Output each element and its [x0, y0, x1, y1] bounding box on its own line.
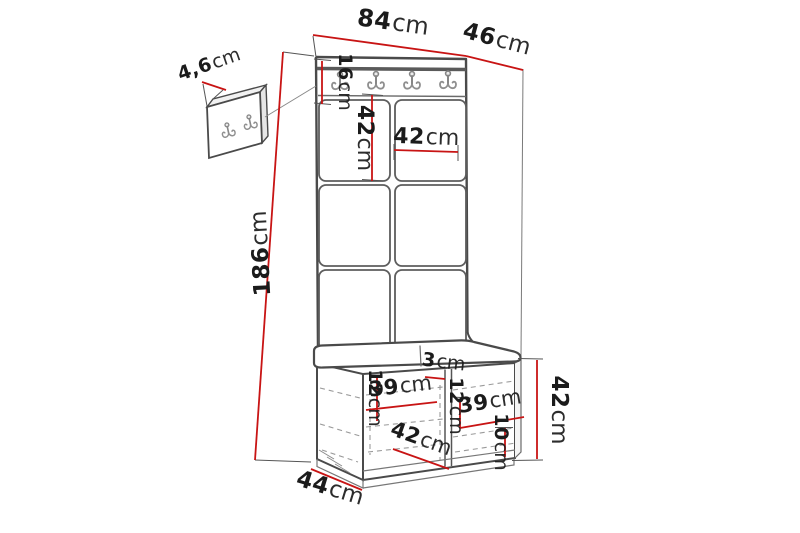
bench — [314, 340, 521, 488]
dim-panel-height-label: 42cm — [352, 105, 377, 171]
coat-hook-icon — [368, 72, 384, 89]
dim-rail-height-label: 16cm — [334, 53, 356, 110]
dim-total-depth-line — [466, 56, 523, 70]
dim-total-depth-label: 46cm — [460, 18, 533, 61]
dimension-diagram: 84cm 46cm 4,6cm 16cm 42cm 42cm 186cm 3cm… — [0, 0, 800, 533]
seat-cushion — [314, 340, 521, 367]
upholstered-panel — [395, 185, 466, 266]
coat-hook-icon — [440, 71, 456, 88]
detail-callout-line — [265, 86, 316, 117]
wall-panel-detail — [207, 85, 316, 158]
dim-panel-thickness-label: 4,6cm — [175, 43, 244, 85]
back-right-depth-edge — [521, 69, 523, 357]
dim-total-height-label: 186cm — [246, 210, 276, 297]
upholstered-panel — [319, 185, 390, 266]
dim-panel-width-label: 42cm — [393, 124, 460, 151]
upholstered-panel — [395, 270, 466, 350]
dim-panel-thickness-line — [202, 82, 226, 90]
dim-total-width-label: 84cm — [356, 3, 431, 41]
hallway-unit-drawing: 84cm 46cm 4,6cm 16cm 42cm 42cm 186cm 3cm… — [0, 0, 800, 533]
coat-hook-icon — [404, 72, 420, 89]
dim-bench-height-label: 42cm — [546, 375, 572, 444]
dim-base-height-label: 10cm — [490, 413, 512, 470]
upholstered-panel — [319, 270, 390, 350]
bench-side-panel — [317, 364, 363, 481]
